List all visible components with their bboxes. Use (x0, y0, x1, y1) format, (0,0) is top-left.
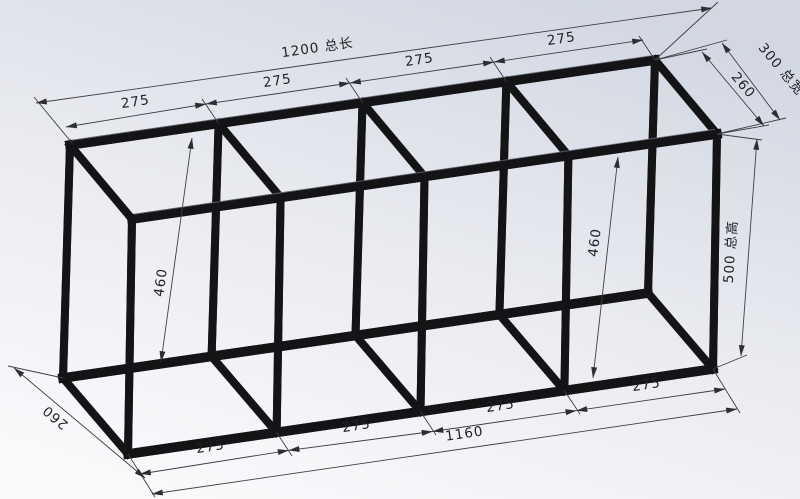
beam-texture (128, 219, 132, 454)
beam-texture (277, 197, 281, 432)
beam-texture (421, 177, 425, 412)
cad-3d-viewport[interactable]: 1200 总长 275 275 275 275 300 总宽 260 500 总… (0, 0, 800, 499)
beam-texture (564, 156, 568, 391)
viewport-background (0, 0, 800, 499)
beam-texture (713, 134, 717, 369)
